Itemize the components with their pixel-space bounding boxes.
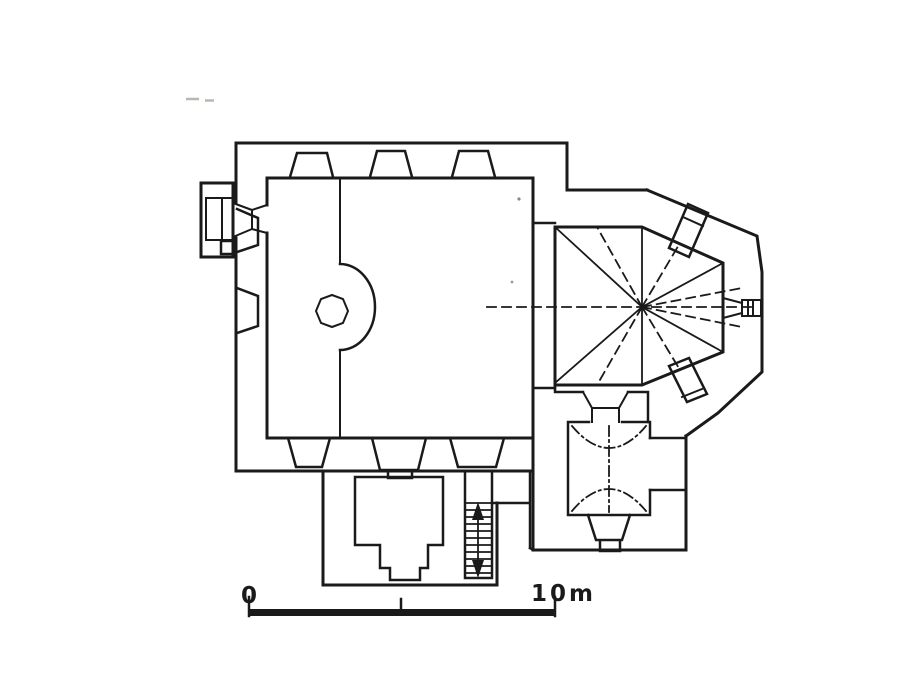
- spiral-stair-newel: [316, 295, 348, 327]
- south-chapel: [323, 471, 533, 585]
- wall-pilasters-west: [237, 209, 258, 333]
- spiral-stair-turret: [316, 178, 375, 438]
- church-floor-plan-drawing: 0 10m: [0, 0, 900, 697]
- sacristy-east-niche: [650, 438, 686, 490]
- nave-walls: [236, 143, 647, 550]
- stair-arrow-down: [472, 560, 484, 578]
- floor-plan-canvas: 0 10m: [0, 0, 900, 697]
- star-vault-ribs: [487, 227, 757, 385]
- sacristy-door: [583, 392, 628, 422]
- east-window: [723, 298, 761, 318]
- scale-bar-end-label: 10m: [531, 581, 596, 607]
- scale-bar-zero-label: 0: [241, 583, 260, 609]
- wall-pilasters-north: [290, 151, 495, 177]
- stair-arrow-up: [472, 502, 484, 520]
- staircase: [465, 471, 492, 578]
- sacristy: [533, 383, 686, 551]
- vault-axis-lines: [487, 227, 757, 385]
- sacristy-south-pilaster: [588, 515, 630, 551]
- sacristy-vault-lines: [572, 426, 646, 512]
